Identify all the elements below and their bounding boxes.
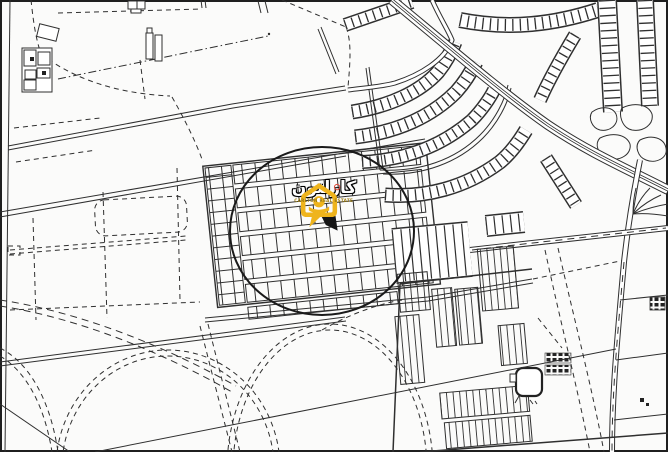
- eastern-road: [612, 160, 640, 452]
- road-upper-left: [8, 86, 346, 150]
- lower-road: [0, 317, 346, 366]
- hatched-block: [545, 353, 571, 363]
- plot-band: [546, 158, 576, 205]
- carlton-watermark: كارلتون CARLTON REAL ESTATE: [296, 182, 352, 207]
- carlton-logo-icon: [296, 182, 342, 234]
- map-viewport: كارلتون CARLTON REAL ESTATE: [0, 0, 668, 452]
- brand-tagline-english: CARLTON REAL ESTATE: [295, 199, 354, 203]
- plot-band: [607, 0, 613, 112]
- small-buildings: [128, 1, 162, 61]
- plot-band: [460, 10, 598, 25]
- plot-band: [394, 249, 470, 256]
- farm-compound-building: [22, 24, 59, 92]
- plot-band: [486, 222, 524, 226]
- long-diagonal-line: [95, 349, 616, 452]
- plot-band: [540, 35, 575, 100]
- plot-band: [645, 0, 650, 106]
- hatched-block: [545, 365, 571, 375]
- curved-subdivision: [345, 0, 668, 256]
- registered-mark-icon: [334, 184, 339, 189]
